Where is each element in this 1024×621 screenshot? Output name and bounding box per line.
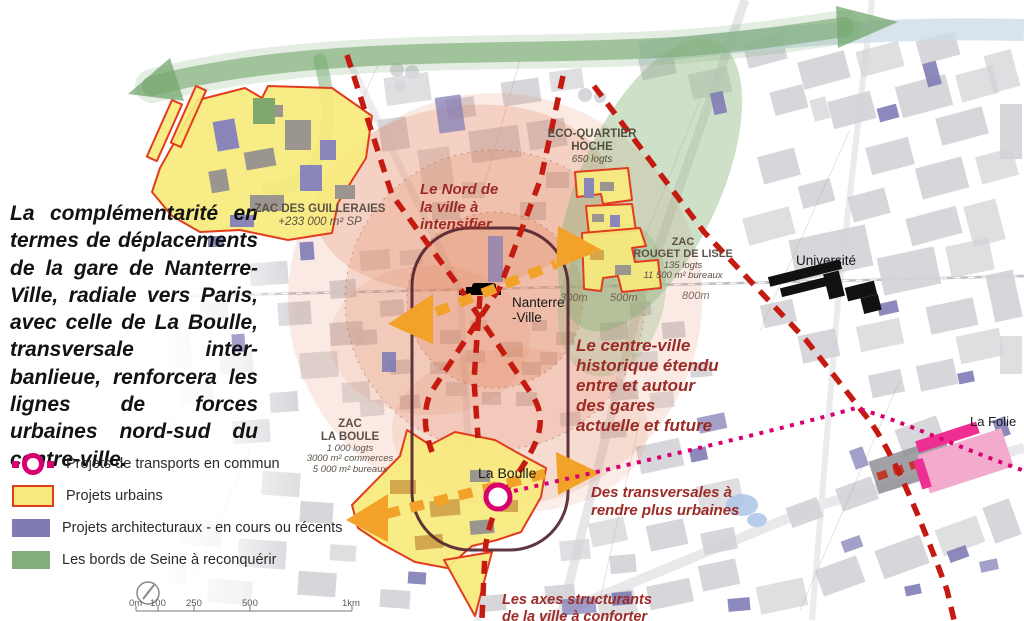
legend-item-seine: Les bords de Seine à reconquérir xyxy=(12,544,342,576)
label-universite: Université xyxy=(796,254,856,269)
seine-swatch-icon xyxy=(12,551,50,569)
label-la-boulle: La Boulle xyxy=(478,466,536,481)
annotation-transversals: Des transversales à rendre plus urbaines xyxy=(591,484,739,519)
ring-label-500m: 500m xyxy=(610,292,638,304)
annotation-axes: Les axes structurants de la ville à conf… xyxy=(502,592,652,621)
transport-line-icon xyxy=(12,453,54,475)
architectural-swatch-icon xyxy=(12,519,50,537)
label-la-folie: La Folie xyxy=(970,415,1016,429)
scale-label-1km: 1km xyxy=(342,598,360,609)
label-zac-la-boule: ZAC LA BOULE 1 000 logts 3000 m² commerc… xyxy=(290,418,410,476)
label-nanterre-ville: Nanterre -Ville xyxy=(512,296,565,326)
legend-item-architectural: Projets architecturaux - en cours ou réc… xyxy=(12,512,342,544)
legend-label: Projets urbains xyxy=(66,488,163,504)
legend-label: Projets architecturaux - en cours ou réc… xyxy=(62,520,342,536)
annotation-center: Le centre-ville historique étendu entre … xyxy=(576,336,719,436)
ring-label-300m: 300m xyxy=(560,292,588,304)
urban-swatch-icon xyxy=(12,485,54,507)
scale-label-0m: 0m xyxy=(129,598,142,609)
la-folie-area xyxy=(726,415,1014,527)
scale-label-100: 100 xyxy=(150,598,166,609)
label-zac-guilleraies: ZAC DES GUILLERAIES +233 000 m² SP xyxy=(250,203,390,229)
legend-label: Projets de transports en commun xyxy=(66,456,280,472)
annotation-north: Le Nord de la ville à intensifier xyxy=(420,181,498,234)
scale-label-250: 250 xyxy=(186,598,202,609)
la-boulle-station-circle xyxy=(486,485,510,509)
ring-label-800m: 800m xyxy=(682,290,710,302)
legend-label: Les bords de Seine à reconquérir xyxy=(62,552,276,568)
label-zac-rouget-de-lisle: ZAC ROUGET DE LISLE 135 logts 11 500 m² … xyxy=(628,236,738,282)
label-eco-quartier-hoche: ECO-QUARTIER HOCHE 650 logts xyxy=(532,128,652,165)
legend-item-urban: Projets urbains xyxy=(12,480,342,512)
intro-paragraph: La complémentarité en termes de déplacem… xyxy=(10,200,258,473)
scale-label-500: 500 xyxy=(242,598,258,609)
urban-plan-map: La complémentarité en termes de déplacem… xyxy=(0,0,1024,621)
